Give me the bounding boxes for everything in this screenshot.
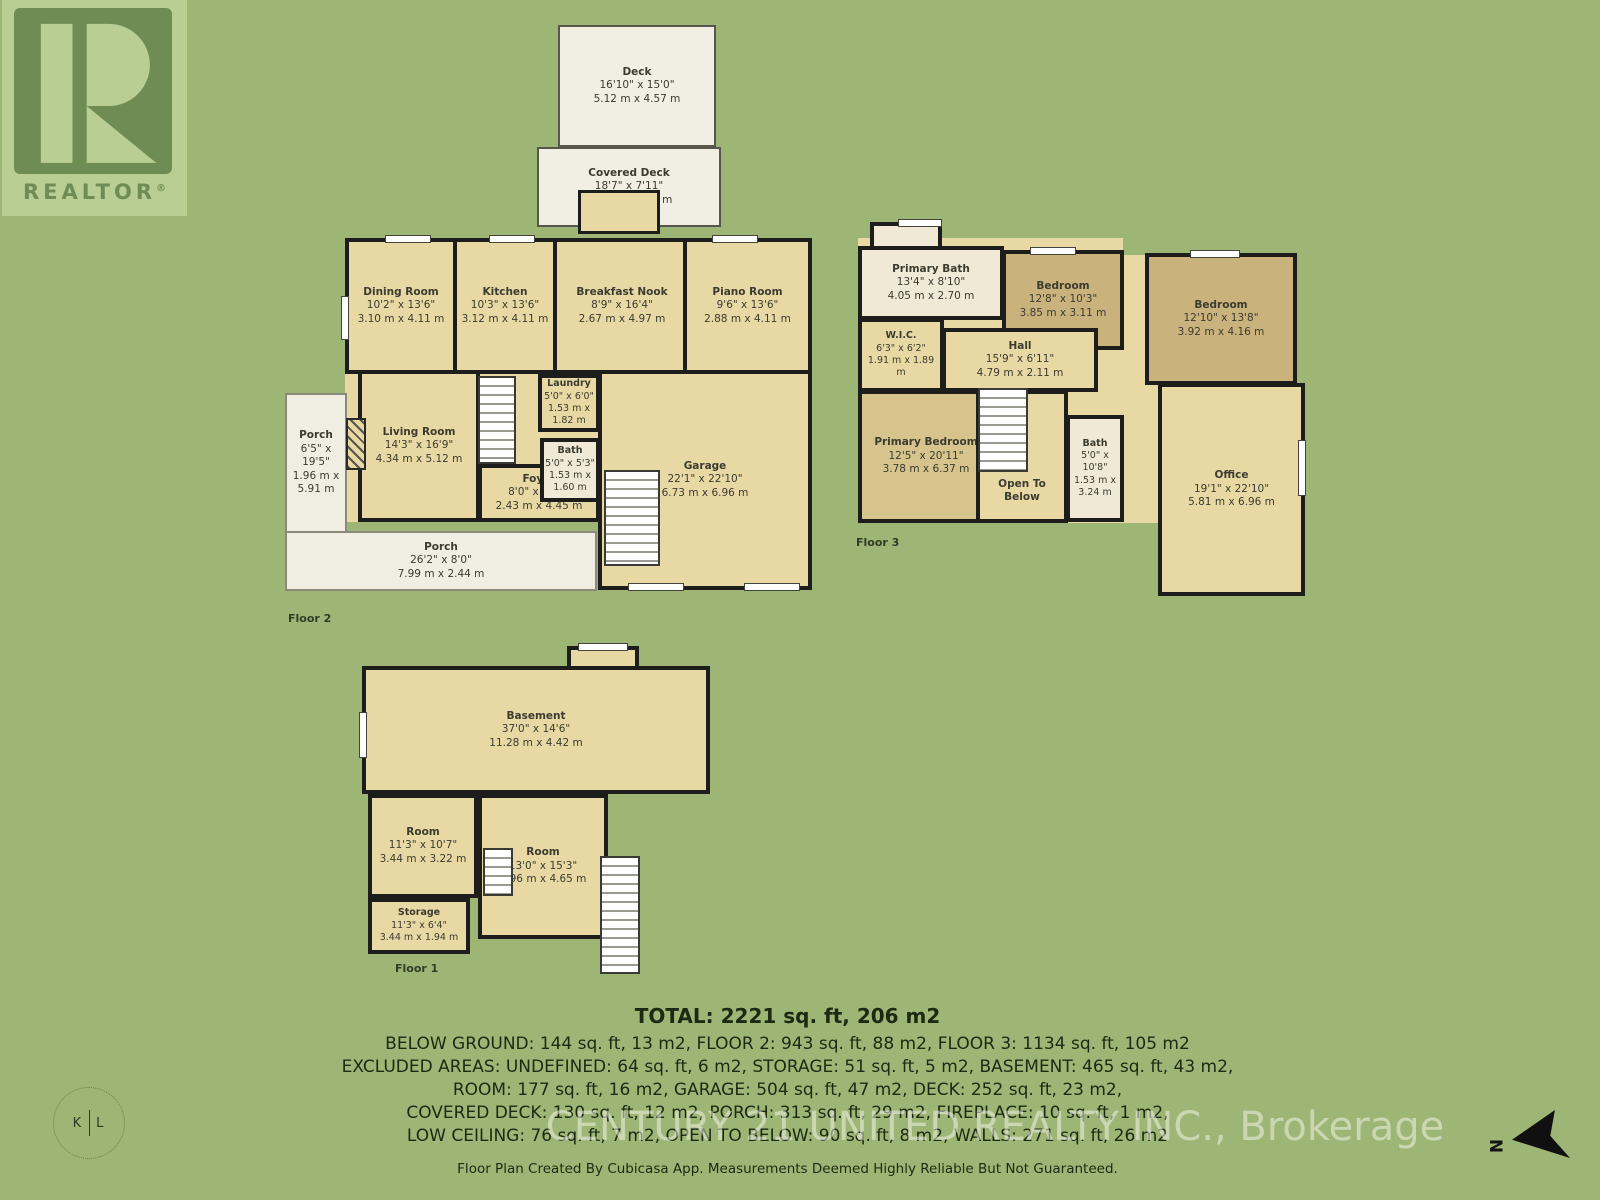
window-marker bbox=[712, 235, 758, 243]
floor1-stairs-small bbox=[483, 848, 513, 896]
area-line-2: EXCLUDED AREAS: UNDEFINED: 64 sq. ft, 6 … bbox=[0, 1057, 1575, 1077]
floor2-room-breakfast-nook: Breakfast Nook8'9" x 16'4"2.67 m x 4.97 … bbox=[553, 238, 687, 374]
floor1-room-a: Room11'3" x 10'7"3.44 m x 3.22 m bbox=[368, 794, 478, 898]
photo-logo-l: L bbox=[96, 1116, 105, 1131]
photo-logo-k: K bbox=[73, 1116, 84, 1131]
north-letter: N bbox=[1485, 1139, 1505, 1153]
fireplace bbox=[346, 418, 366, 470]
floor3-stairs bbox=[978, 388, 1028, 472]
floor3-room-bath: Bath5'0" x 10'8"1.53 m x 3.24 m bbox=[1066, 415, 1124, 522]
floor2-room-piano: Piano Room9'6" x 13'6"2.88 m x 4.11 m bbox=[683, 238, 812, 374]
floor3-room-office: Office19'1" x 22'10"5.81 m x 6.96 m bbox=[1158, 383, 1305, 596]
window-marker bbox=[341, 296, 349, 340]
floor3-room-primary-bath: Primary Bath13'4" x 8'10"4.05 m x 2.70 m bbox=[858, 246, 1004, 320]
window-marker bbox=[898, 219, 942, 227]
floor2-label: Floor 2 bbox=[288, 612, 331, 625]
window-marker bbox=[385, 235, 431, 243]
photo-logo-divider bbox=[89, 1110, 90, 1136]
floor2-room-living: Living Room14'3" x 16'9"4.34 m x 5.12 m bbox=[358, 370, 480, 522]
photographer-logo: K L bbox=[53, 1087, 125, 1159]
floor2-stairs bbox=[478, 376, 516, 464]
total-area: TOTAL: 2221 sq. ft, 206 m2 bbox=[0, 1004, 1575, 1028]
window-marker bbox=[628, 583, 684, 591]
floor2-room-porch-side: Porch6'5" x 19'5"1.96 m x 5.91 m bbox=[285, 393, 347, 533]
window-marker bbox=[1030, 247, 1076, 255]
floor2-room-dining: Dining Room10'2" x 13'6"3.10 m x 4.11 m bbox=[345, 238, 457, 374]
brokerage-watermark: CENTURY 21 UNITED REALTY INC., Brokerage bbox=[460, 1104, 1530, 1150]
realtor-r-glyph bbox=[14, 8, 172, 174]
window-marker bbox=[1298, 440, 1306, 496]
floor1-room-basement: Basement37'0" x 14'6"11.28 m x 4.42 m bbox=[362, 666, 710, 794]
window-marker bbox=[1190, 250, 1240, 258]
area-line-3: ROOM: 177 sq. ft, 16 m2, GARAGE: 504 sq.… bbox=[0, 1080, 1575, 1100]
floor-plan-page: REALTOR® Deck16'10" x 15'0"5.12 m x 4.57… bbox=[0, 0, 1600, 1200]
realtor-logo-icon bbox=[14, 8, 172, 174]
window-marker bbox=[744, 583, 800, 591]
window-marker bbox=[489, 235, 535, 243]
floor3-room-primary-bedroom: Primary Bedroom12'5" x 20'11"3.78 m x 6.… bbox=[858, 390, 994, 523]
floor3-room-hall: Hall15'9" x 6'11"4.79 m x 2.11 m bbox=[942, 328, 1098, 392]
floor3-room-bedroom-b: Bedroom12'10" x 13'8"3.92 m x 4.16 m bbox=[1145, 253, 1297, 385]
floor1-room-storage: Storage11'3" x 6'4"3.44 m x 1.94 m bbox=[368, 898, 470, 954]
floor3-label: Floor 3 bbox=[856, 536, 899, 549]
registered-mark: ® bbox=[156, 183, 166, 194]
floor2-room-bath: Bath5'0" x 5'3"1.53 m x 1.60 m bbox=[540, 438, 600, 502]
floor2-garage-stairs bbox=[604, 470, 660, 566]
area-line-1: BELOW GROUND: 144 sq. ft, 13 m2, FLOOR 2… bbox=[0, 1034, 1575, 1054]
floor2-room-porch-front: Porch26'2" x 8'0"7.99 m x 2.44 m bbox=[285, 531, 597, 591]
floor2-room-laundry: Laundry5'0" x 6'0"1.53 m x 1.82 m bbox=[538, 374, 600, 432]
floor2-room-kitchen: Kitchen10'3" x 13'6"3.12 m x 4.11 m bbox=[453, 238, 557, 374]
floor2-room-deck: Deck16'10" x 15'0"5.12 m x 4.57 m bbox=[558, 25, 716, 147]
window-marker bbox=[359, 712, 367, 758]
window-marker bbox=[578, 643, 628, 651]
disclaimer-text: Floor Plan Created By Cubicasa App. Meas… bbox=[180, 1161, 1395, 1177]
breakfast-bay-window bbox=[578, 190, 660, 234]
realtor-label: REALTOR® bbox=[2, 180, 187, 204]
realtor-logo: REALTOR® bbox=[2, 0, 187, 216]
floor3-room-wic: W.I.C.6'3" x 6'2"1.91 m x 1.89 m bbox=[858, 318, 944, 392]
floor1-label: Floor 1 bbox=[395, 962, 438, 975]
floor1-stairs-long bbox=[600, 856, 640, 974]
